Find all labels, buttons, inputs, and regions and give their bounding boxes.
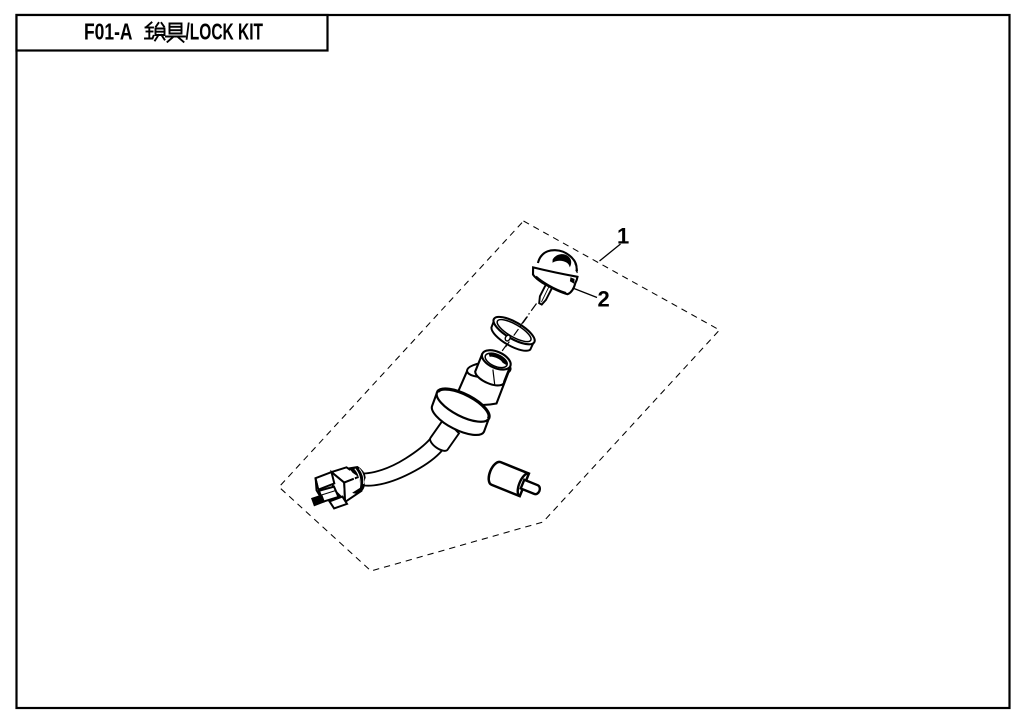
svg-text:F01-A: F01-A — [84, 19, 133, 45]
svg-text:2: 2 — [598, 287, 610, 312]
svg-text:/LOCK KIT: /LOCK KIT — [186, 19, 264, 45]
svg-text:1: 1 — [617, 224, 629, 249]
